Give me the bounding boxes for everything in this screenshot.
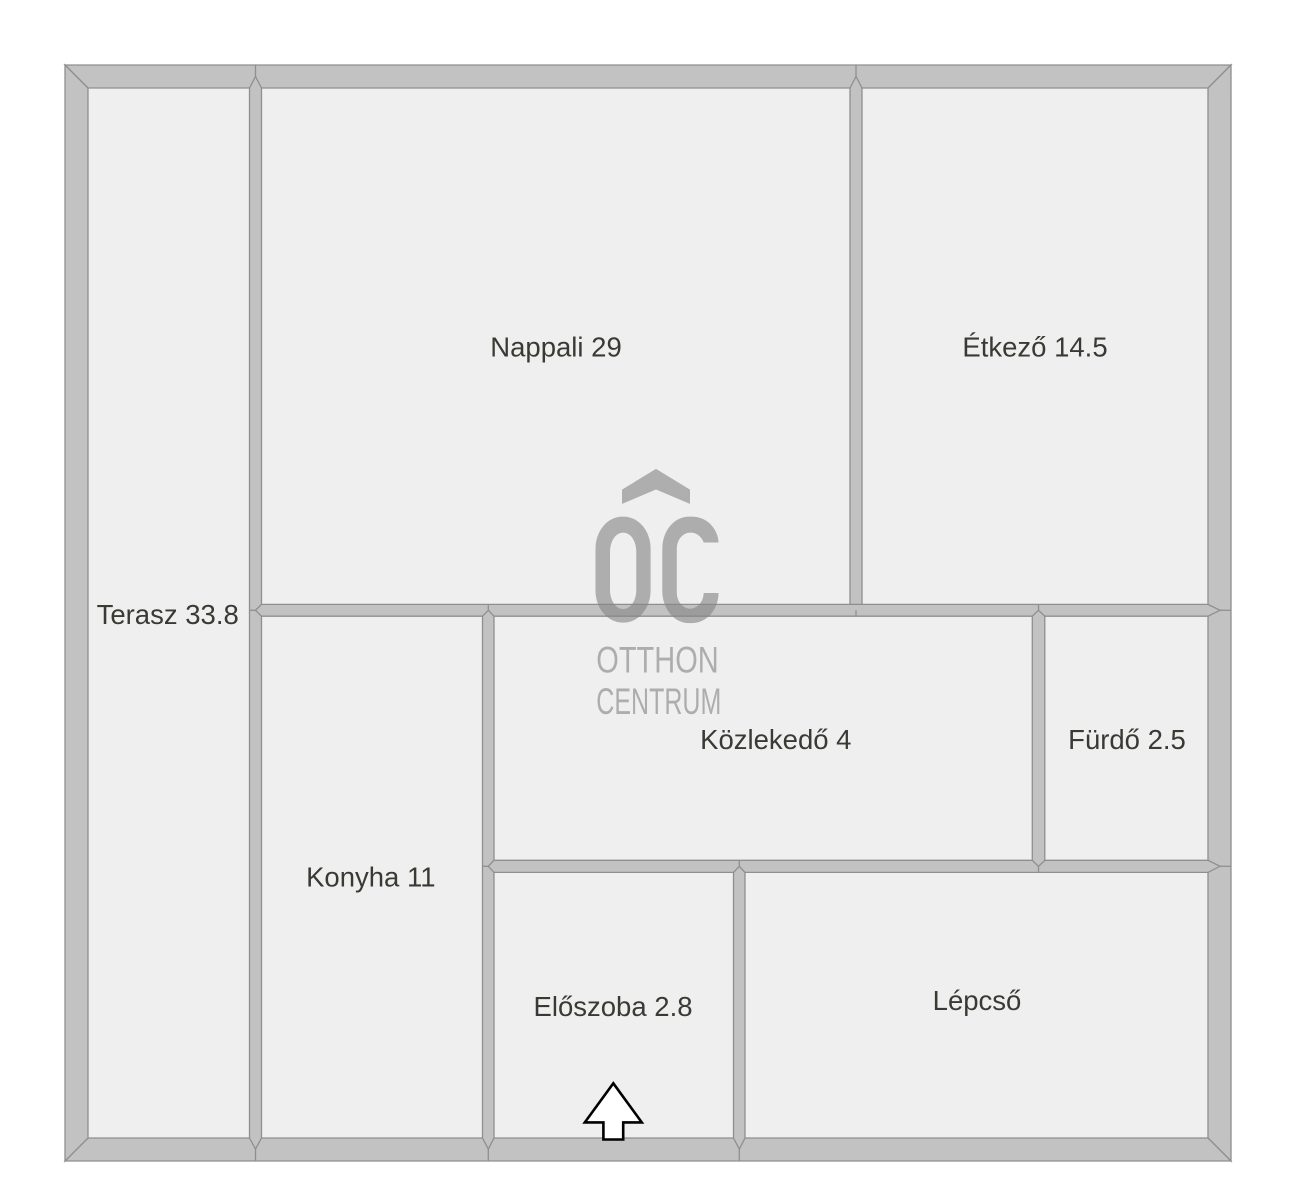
svg-text:Fürdő 2.5: Fürdő 2.5 [1068,724,1186,755]
svg-text:OTTHON: OTTHON [596,640,718,681]
svg-text:CENTRUM: CENTRUM [596,681,721,722]
svg-text:Nappali 29: Nappali 29 [490,331,621,362]
svg-text:Közlekedő 4: Közlekedő 4 [700,724,851,755]
svg-text:Előszoba 2.8: Előszoba 2.8 [534,991,693,1022]
svg-text:Terasz 33.8: Terasz 33.8 [97,599,239,630]
svg-text:Konyha 11: Konyha 11 [306,862,435,893]
svg-text:Étkező 14.5: Étkező 14.5 [962,331,1107,362]
svg-text:Lépcső: Lépcső [933,985,1022,1016]
